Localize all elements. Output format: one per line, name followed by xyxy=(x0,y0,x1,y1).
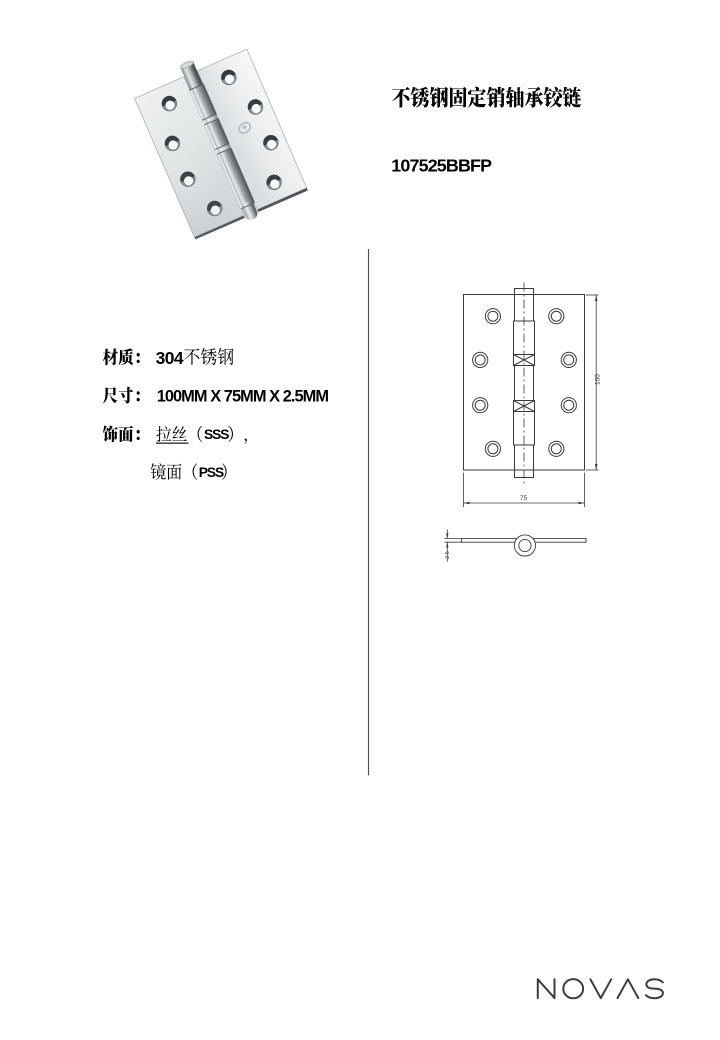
svg-text:100MM X 75MM X 2.5MM: 100MM X 75MM X 2.5MM xyxy=(157,387,329,405)
svg-text:2.5: 2.5 xyxy=(445,551,451,559)
svg-text:304: 304 xyxy=(156,348,184,368)
svg-text:PSS: PSS xyxy=(199,465,224,480)
svg-text:SSS: SSS xyxy=(204,427,229,442)
svg-text:107525BBFP: 107525BBFP xyxy=(391,155,492,175)
svg-text:75: 75 xyxy=(520,495,528,502)
svg-text:100: 100 xyxy=(595,374,602,385)
